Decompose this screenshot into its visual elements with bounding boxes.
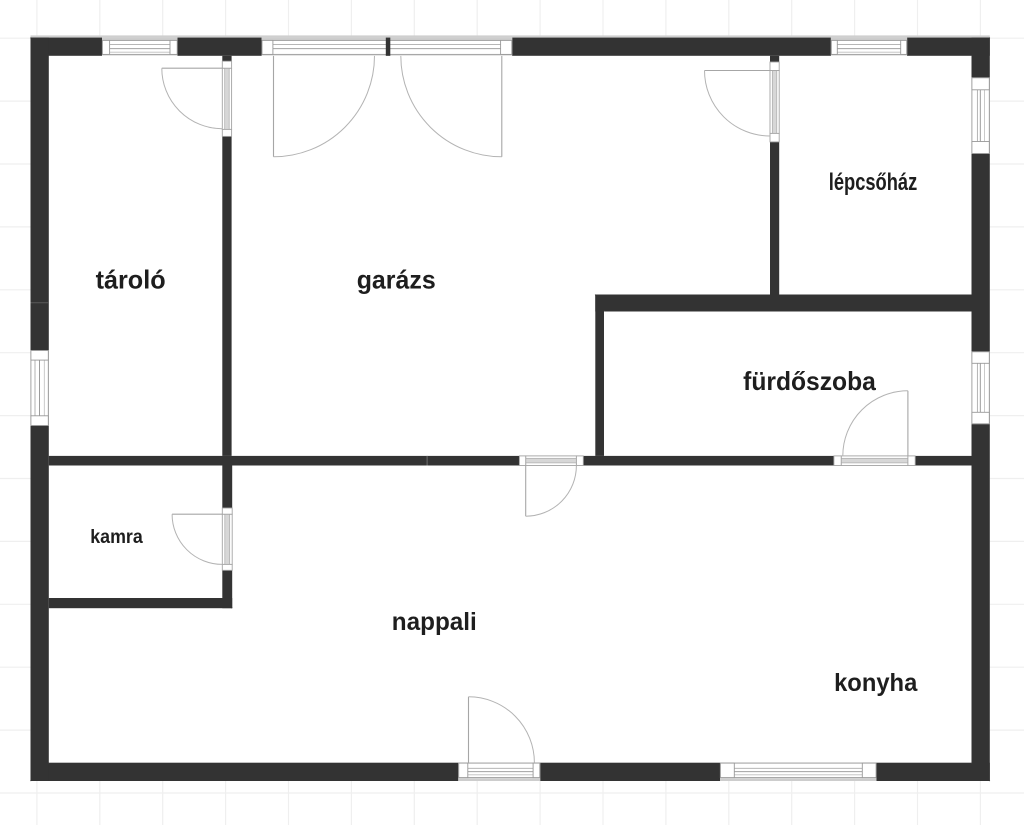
svg-text:tároló: tároló bbox=[96, 265, 166, 295]
svg-text:fürdőszoba: fürdőszoba bbox=[743, 366, 876, 396]
svg-text:nappali: nappali bbox=[392, 608, 477, 636]
svg-text:garázs: garázs bbox=[357, 265, 436, 295]
svg-text:konyha: konyha bbox=[834, 669, 918, 697]
svg-text:kamra: kamra bbox=[90, 527, 143, 548]
svg-text:lépcsőház: lépcsőház bbox=[829, 169, 918, 196]
